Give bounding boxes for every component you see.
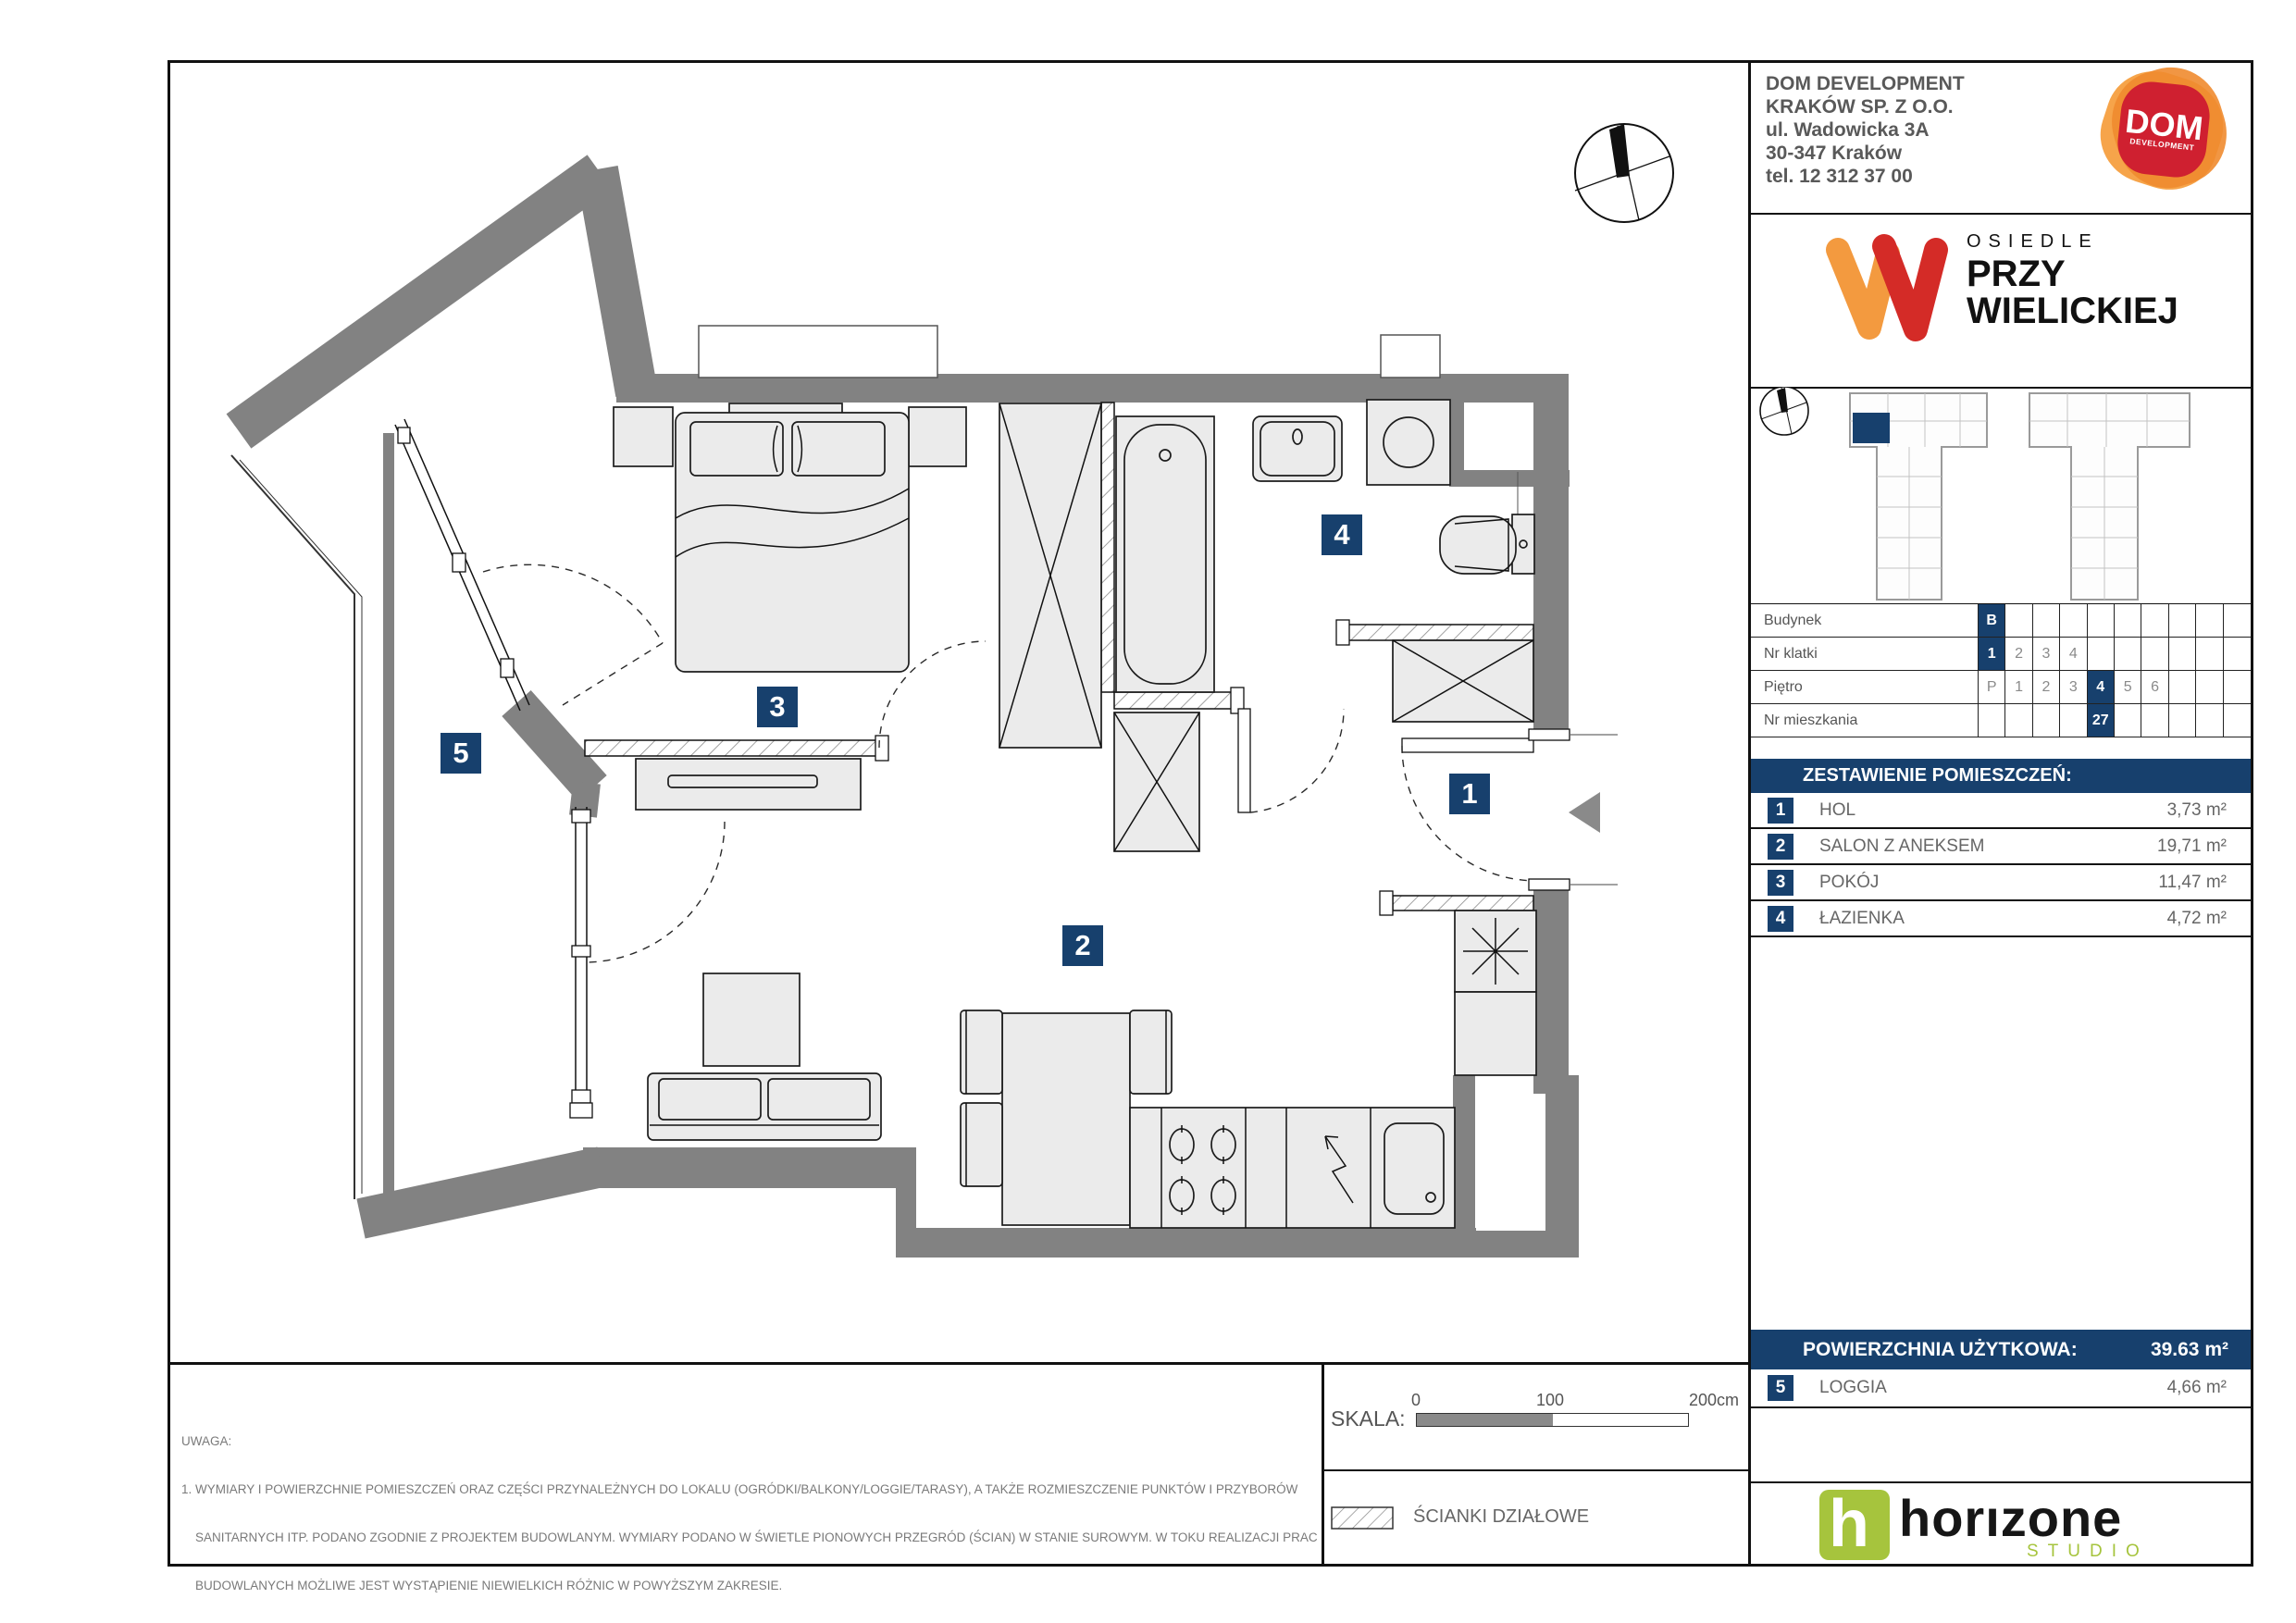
room-row-hol: 1 HOL 3,73 m² (1751, 793, 2251, 829)
bath-shaft (1464, 403, 1533, 470)
horizone-studio-text: STUDIO (2027, 1542, 2149, 1562)
badge-loggia: 5 (453, 737, 468, 769)
estate-przy: PRZY (1967, 255, 2178, 292)
room-area: 3,73 m² (2167, 800, 2227, 821)
loggia-badge: 5 (1768, 1375, 1793, 1401)
rooms-header-text: ZESTAWIENIE POMIESZCZEŃ: (1803, 765, 2072, 787)
room-row-pokoj: 3 POKÓJ 11,47 m² (1751, 865, 2251, 901)
row-label: Budynek (1751, 604, 1979, 637)
company-name2: KRAKÓW SP. Z O.O. (1766, 95, 1965, 118)
cell: B (1979, 604, 2005, 637)
usable-area-value: 39.63 m² (2151, 1339, 2228, 1361)
floorplan-drawing: 1 2 3 4 5 (168, 61, 1748, 1362)
floorplan-sheet: 1 2 3 4 5 DOM DEVELOPMENT KRAKÓW SP. Z O… (0, 0, 2296, 1623)
badge-lazienka: 4 (1334, 518, 1350, 551)
unit-location-marker (1853, 413, 1890, 443)
loggia-area: 4,66 m² (2167, 1378, 2227, 1398)
compass-icon (1575, 124, 1673, 222)
usable-area-label: POWIERZCHNIA UŻYTKOWA: (1803, 1339, 2078, 1361)
unit-table-row-mieszkanie: Nr mieszkania 27 (1751, 704, 2251, 737)
scale-legend-divider (1322, 1469, 1748, 1471)
room-row-salon: 2 SALON Z ANEKSEM 19,71 m² (1751, 829, 2251, 865)
sidebar-line-3 (1751, 1481, 2251, 1483)
horizone-wordmark: horızone (1899, 1488, 2122, 1548)
row-label: Nr mieszkania (1751, 704, 1979, 737)
estate-osiedle: OSIEDLE (1967, 231, 2178, 253)
loggia-name: LOGGIA (1819, 1378, 2167, 1398)
usable-area-bar: POWIERZCHNIA UŻYTKOWA: 39.63 m² (1751, 1330, 2251, 1369)
wall-notch (1381, 335, 1440, 378)
scale-tick-100: 100 (1536, 1391, 1564, 1410)
scale-bar (1416, 1413, 1689, 1427)
boiler-symbol (1463, 918, 1528, 985)
badge-pokoj: 3 (769, 690, 785, 723)
notes-title: UWAGA: (181, 1433, 1320, 1449)
wall-niche (699, 326, 937, 378)
room-name: HOL (1819, 800, 2167, 821)
unit-table-row-pietro: Piętro P123456 (1751, 671, 2251, 704)
sidebar-line-1 (1751, 213, 2251, 215)
notes-divider (168, 1362, 1748, 1365)
building-a-outline (1850, 393, 1987, 600)
row-label: Nr klatki (1751, 638, 1979, 670)
row-label: Piętro (1751, 671, 1979, 703)
loggia-row: 5 LOGGIA 4,66 m² (1751, 1369, 2251, 1408)
scale-label: SKALA: (1331, 1406, 1406, 1431)
rooms-header-bar: ZESTAWIENIE POMIESZCZEŃ: (1751, 759, 2251, 793)
entrance-arrow (1569, 792, 1600, 833)
company-name: DOM DEVELOPMENT (1766, 72, 1965, 95)
room-row-lazienka: 4 ŁAZIENKA 4,72 m² (1751, 901, 2251, 937)
horizone-h-glyph: h (1829, 1486, 1869, 1562)
minimap-compass-icon (1760, 387, 1808, 435)
room-number-badge: 1 (1768, 798, 1793, 824)
scale-tick-200: 200cm (1689, 1391, 1739, 1410)
estate-wielickiej: WIELICKIEJ (1967, 292, 2178, 329)
badge-salon: 2 (1074, 929, 1090, 961)
partition-legend-label: ŚCIANKI DZIAŁOWE (1413, 1506, 1589, 1528)
dom-development-logo: DOM DEVELOPMENT (2090, 67, 2240, 202)
notes-scale-divider (1322, 1362, 1324, 1564)
loggia-parapet (231, 455, 362, 1199)
building-minimap (1748, 387, 2253, 603)
partition-legend-swatch (1331, 1506, 1394, 1530)
unit-table-row-klatka: Nr klatki 1234 (1751, 638, 2251, 671)
building-b-outline (2029, 393, 2190, 600)
estate-logo-mark (1821, 233, 1960, 344)
horizone-studio-logo: h horızone STUDIO (1819, 1488, 2208, 1562)
scale-tick-0: 0 (1411, 1391, 1421, 1410)
company-city: 30-347 Kraków (1766, 142, 1965, 165)
company-street: ul. Wadowicka 3A (1766, 118, 1965, 142)
unit-table-row-budynek: Budynek B (1751, 604, 2251, 638)
badge-hol: 1 (1461, 777, 1477, 810)
company-phone: tel. 12 312 37 00 (1766, 165, 1965, 188)
estate-logo-text: OSIEDLE PRZY WIELICKIEJ (1967, 231, 2178, 329)
notes-block: UWAGA: 1. WYMIARY I POWIERZCHNIE POMIESZ… (181, 1401, 1320, 1623)
